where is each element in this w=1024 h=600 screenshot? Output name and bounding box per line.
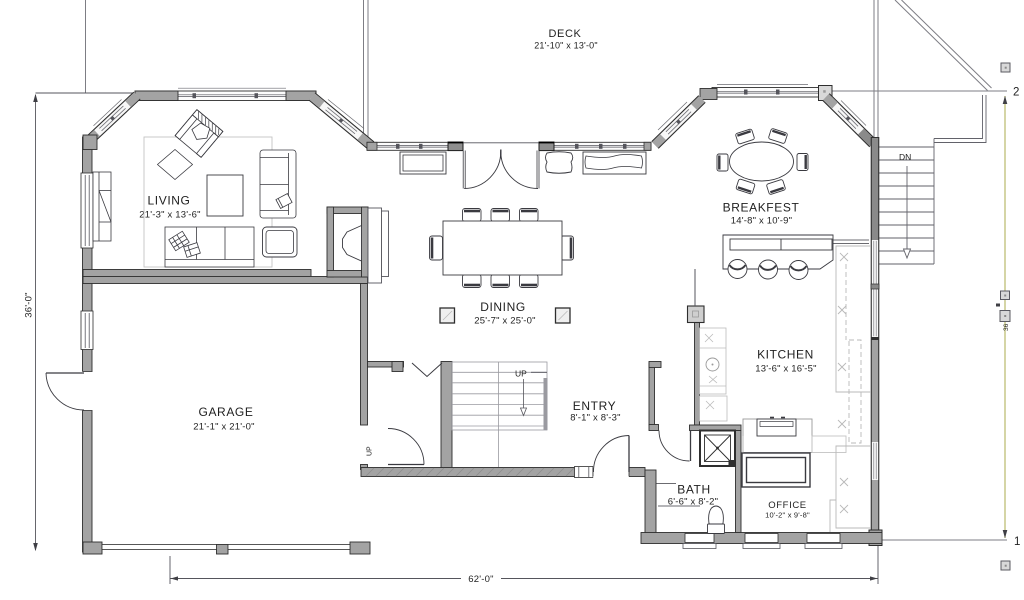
svg-text:BREAKFEST: BREAKFEST (723, 201, 800, 215)
svg-text:2: 2 (1013, 87, 1019, 99)
svg-text:BATH: BATH (677, 483, 711, 497)
svg-text:21'-1" x 21'-0": 21'-1" x 21'-0" (193, 422, 254, 433)
svg-text:LIVING: LIVING (148, 194, 191, 208)
svg-text:DN: DN (899, 152, 911, 162)
svg-text:UP: UP (515, 369, 527, 379)
svg-text:21'-3" x 13'-6": 21'-3" x 13'-6" (139, 210, 200, 221)
svg-text:KITCHEN: KITCHEN (757, 348, 814, 362)
svg-text:36: 36 (1003, 323, 1010, 331)
svg-text:21'-10" x 13'-0": 21'-10" x 13'-0" (534, 41, 598, 51)
svg-text:1: 1 (1014, 536, 1020, 548)
svg-text:8'-1" x 8'-3": 8'-1" x 8'-3" (570, 413, 620, 424)
svg-text:UP: UP (367, 446, 374, 456)
svg-text:36'-0": 36'-0" (24, 292, 35, 317)
svg-text:GARAGE: GARAGE (199, 405, 254, 419)
svg-text:10'-2" x 9'-8": 10'-2" x 9'-8" (765, 511, 810, 520)
svg-text:DINING: DINING (480, 300, 526, 314)
svg-text:62'-0": 62'-0" (468, 574, 493, 585)
svg-text:14'-8" x 10'-9": 14'-8" x 10'-9" (731, 216, 792, 227)
svg-text:ENTRY: ENTRY (573, 399, 616, 413)
svg-text:OFFICE: OFFICE (768, 500, 806, 511)
svg-text:25'-7" x 25'-0": 25'-7" x 25'-0" (474, 316, 535, 327)
svg-text:DECK: DECK (549, 28, 582, 40)
svg-text:13'-6" x 16'-5": 13'-6" x 16'-5" (755, 364, 816, 375)
